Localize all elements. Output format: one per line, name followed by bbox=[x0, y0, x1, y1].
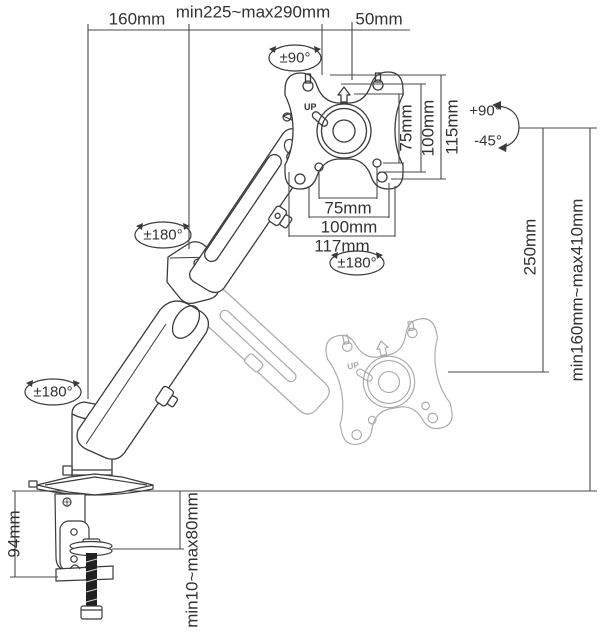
label-vesa-vertical-100: 100mm bbox=[420, 100, 437, 157]
label-vesa-vertical-75: 75mm bbox=[398, 104, 415, 151]
base-plate bbox=[29, 474, 153, 495]
label-plate-rotation: ±180° bbox=[337, 256, 376, 271]
label-height-range: min160mm~max410mm bbox=[569, 199, 586, 382]
label-vesa-horizontal-100: 100mm bbox=[321, 219, 378, 236]
label-base-rotation: ±180° bbox=[33, 385, 72, 400]
desk-clamp bbox=[55, 494, 113, 619]
monitor-arm-dimension-diagram: UP bbox=[0, 0, 600, 633]
label-desk-thickness: min10~max80mm bbox=[184, 492, 201, 628]
up-arrow-icon bbox=[338, 87, 350, 102]
label-plate-height-115: 115mm bbox=[444, 99, 461, 154]
label-upper-arm-drop-250: 250mm bbox=[522, 219, 539, 276]
label-plate-width-117: 117mm bbox=[314, 238, 369, 255]
ghost-vesa-plate: UP bbox=[323, 316, 454, 446]
label-elbow-rotation: ±180° bbox=[143, 228, 182, 243]
label-head-swivel: ±90° bbox=[280, 51, 311, 66]
label-head-offset: 50mm bbox=[355, 11, 402, 28]
label-arm-reach: min225~max290mm bbox=[176, 4, 331, 21]
label-tilt-up: +90° bbox=[469, 104, 500, 119]
diagram-line-art: UP bbox=[0, 0, 600, 633]
lower-arm bbox=[77, 301, 208, 459]
label-arm-offset: 160mm bbox=[109, 11, 166, 28]
label-tilt-down: -45° bbox=[474, 134, 502, 149]
label-clamp-height-94: 94mm bbox=[6, 510, 23, 557]
plate-up-text: UP bbox=[304, 102, 317, 112]
label-vesa-horizontal-75: 75mm bbox=[324, 200, 371, 217]
